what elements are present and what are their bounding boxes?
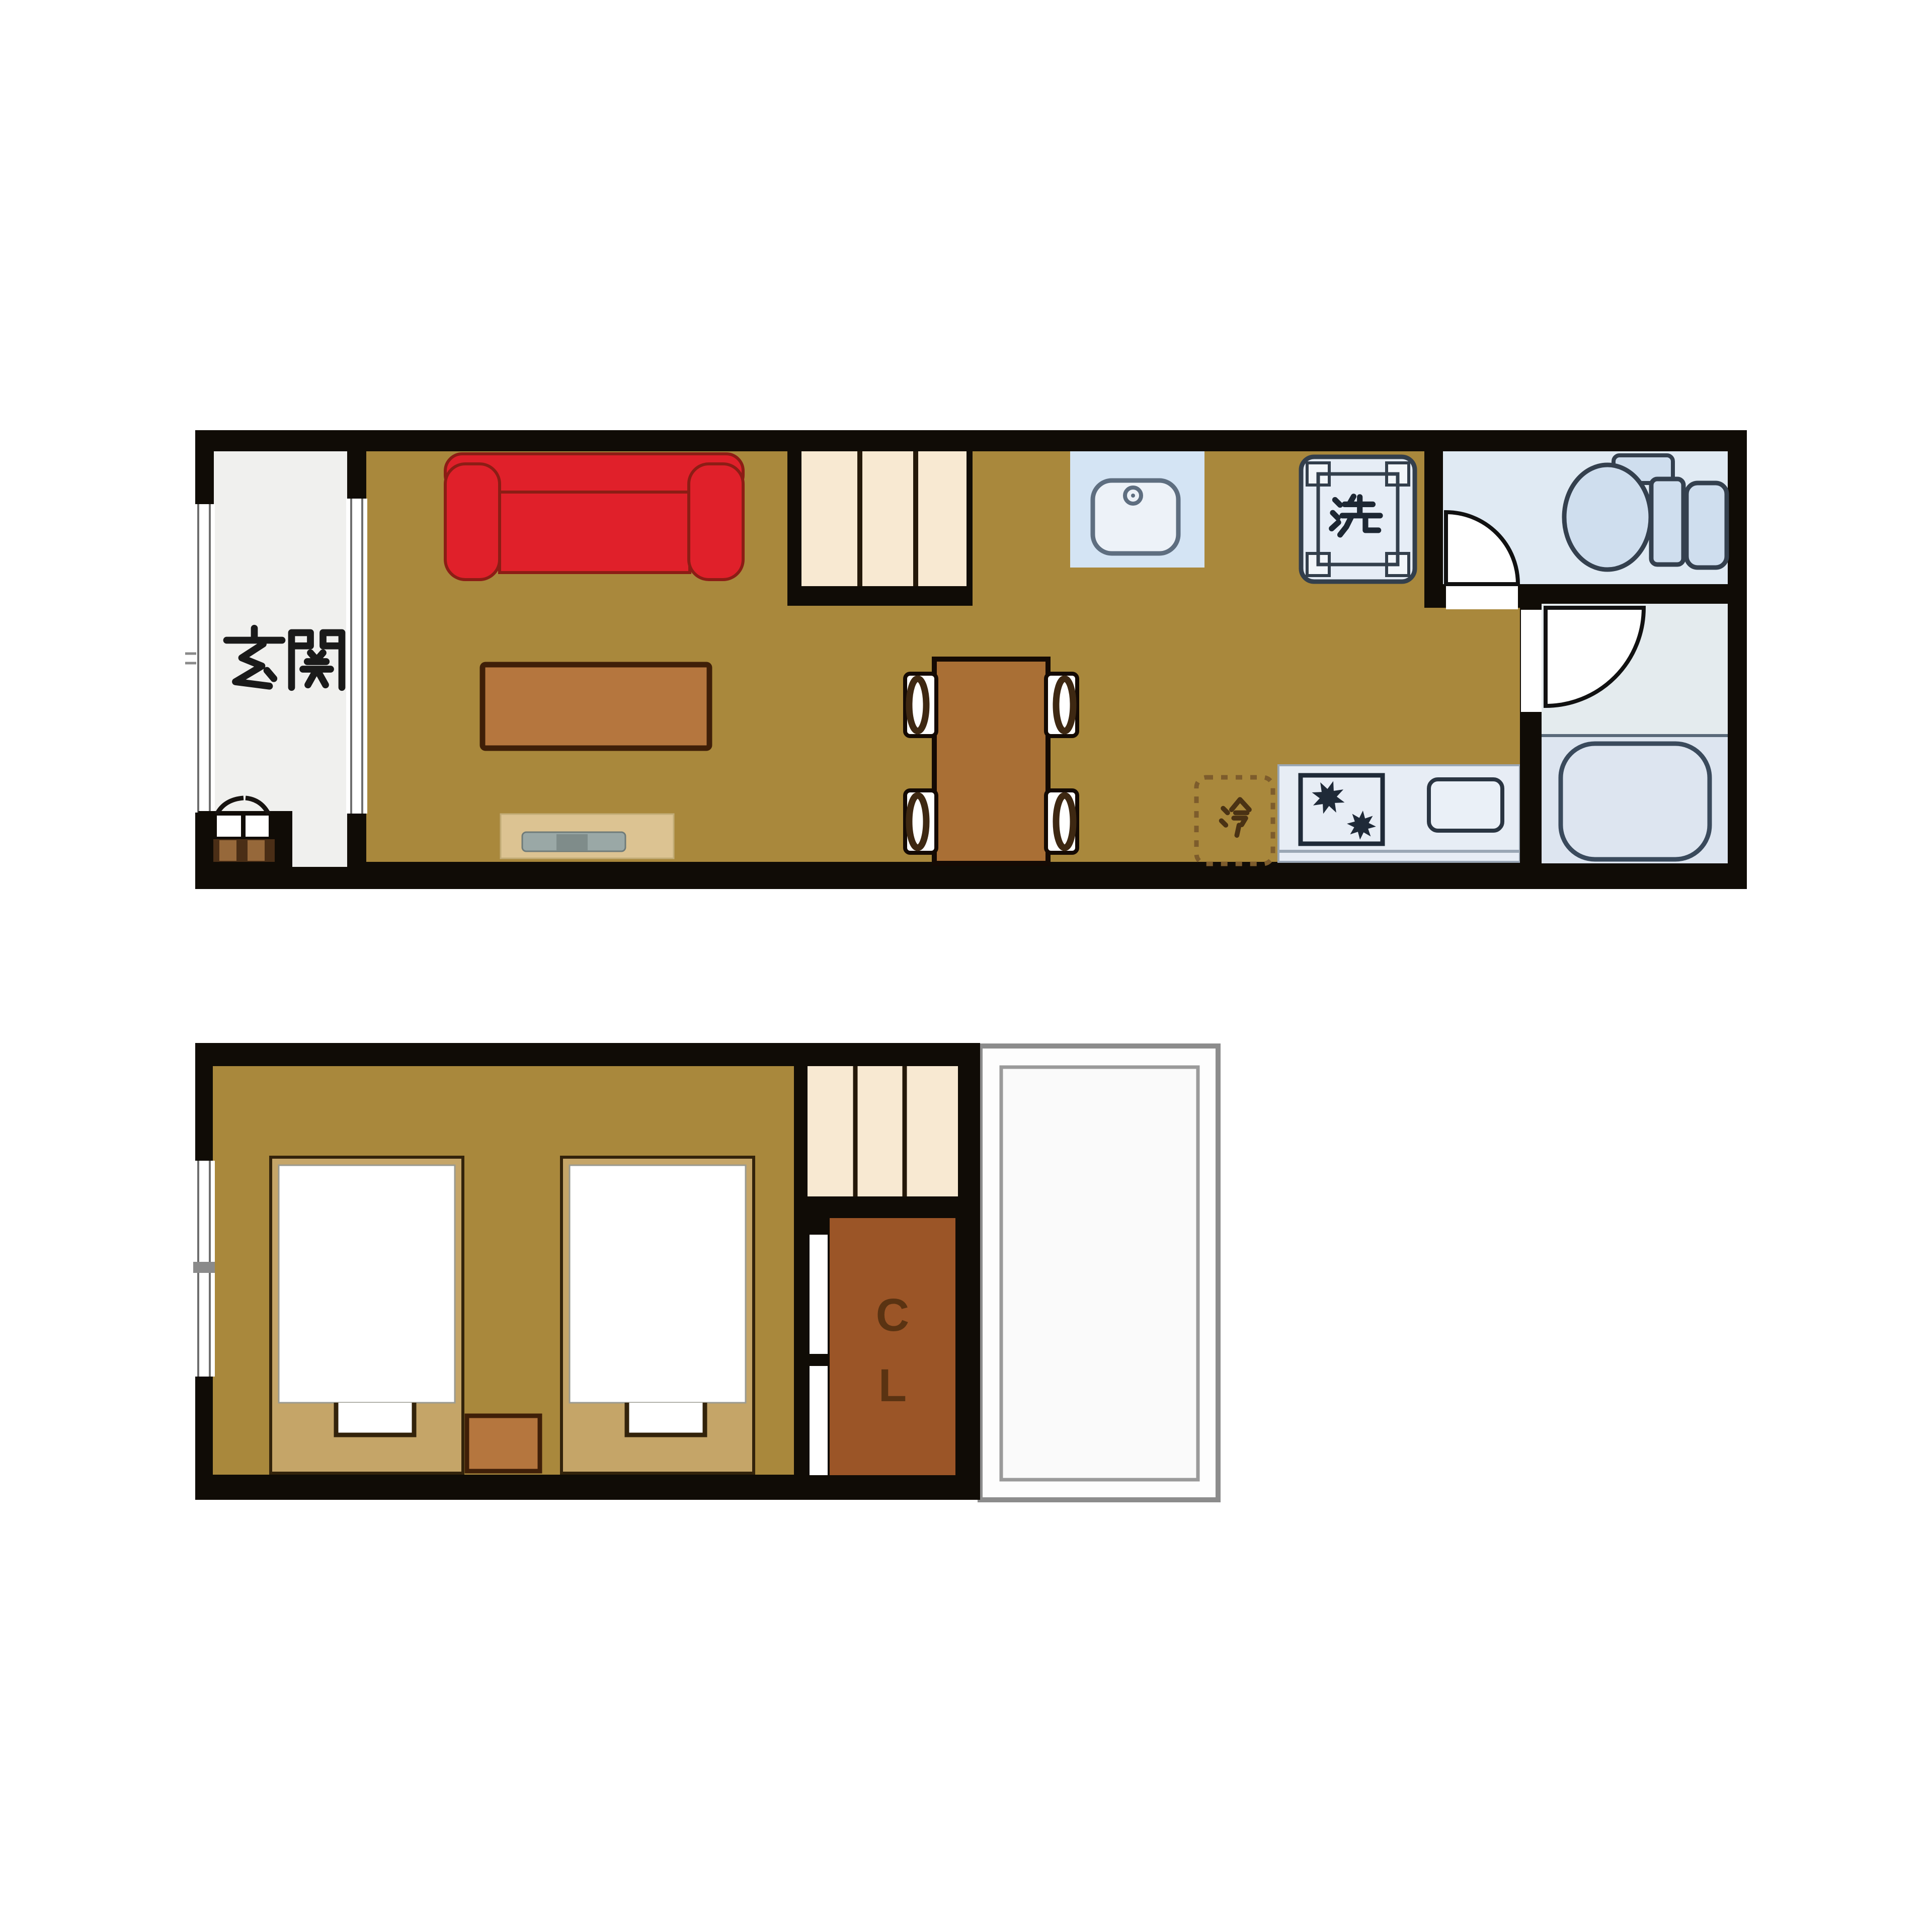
svg-text:L: L <box>878 1360 907 1411</box>
svg-text:C: C <box>876 1290 909 1341</box>
